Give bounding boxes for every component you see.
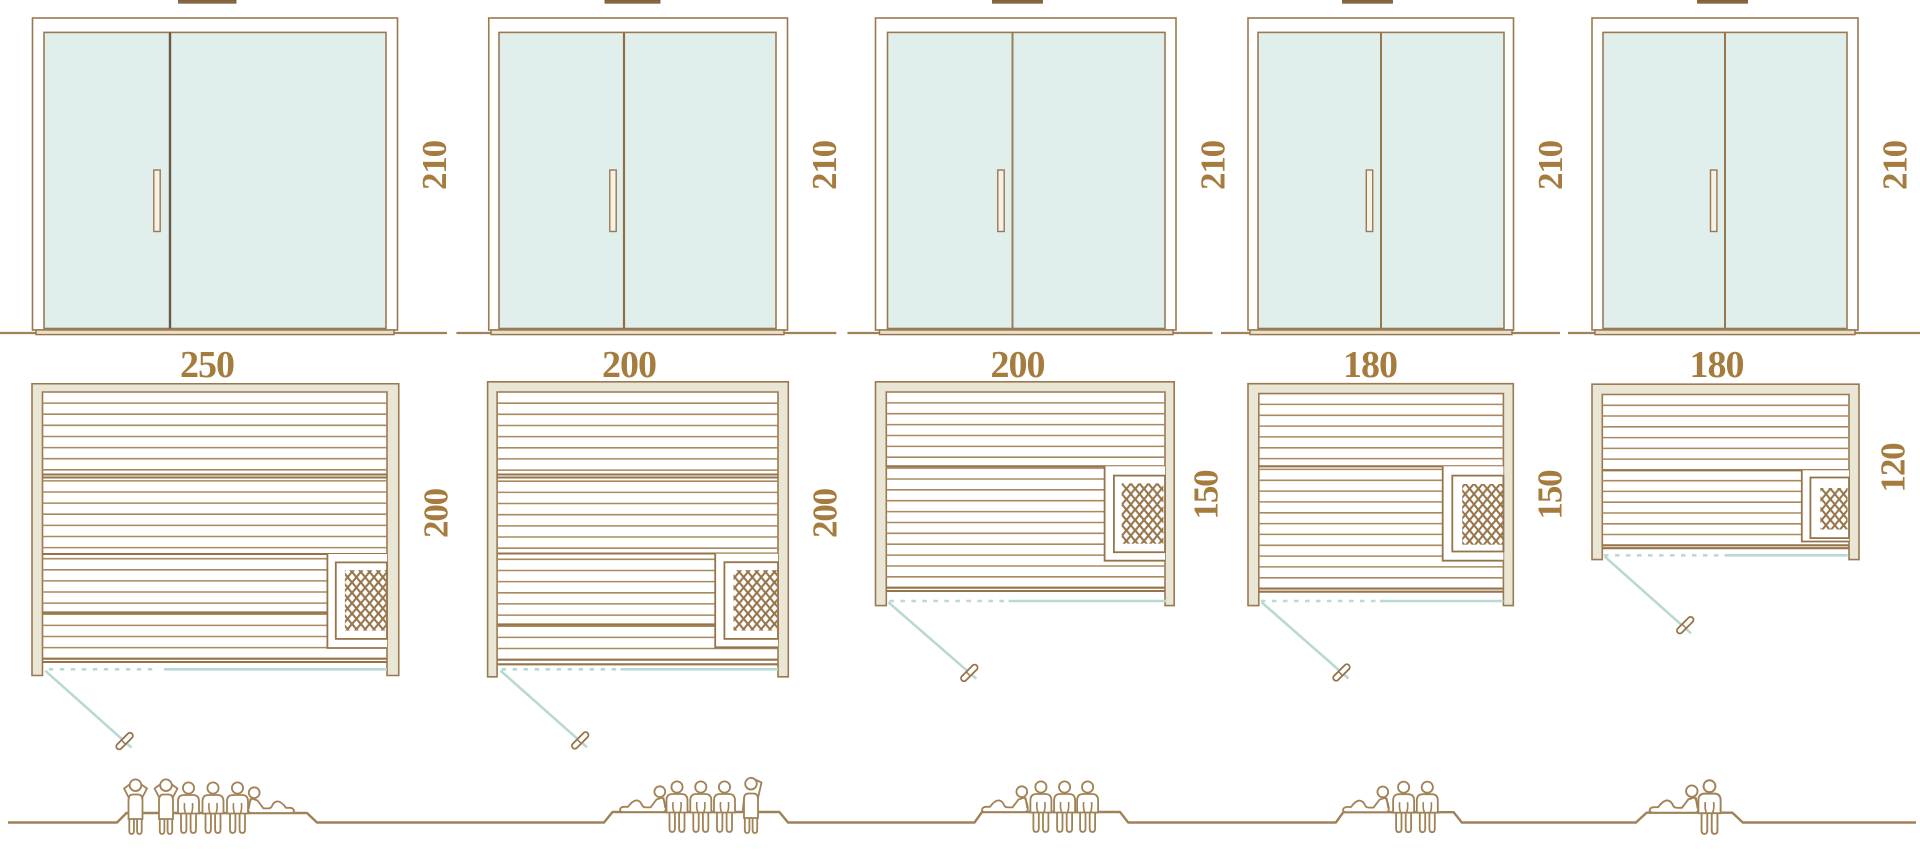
svg-text:200: 200 (991, 344, 1045, 386)
svg-text:120: 120 (1874, 443, 1913, 493)
svg-text:150: 150 (1187, 470, 1226, 520)
svg-text:180: 180 (1690, 344, 1744, 386)
svg-text:210: 210 (805, 140, 844, 190)
svg-text:180: 180 (1343, 344, 1397, 386)
svg-text:150: 150 (1531, 470, 1570, 520)
svg-text:200: 200 (417, 488, 456, 538)
svg-text:210: 210 (415, 140, 454, 190)
svg-text:210: 210 (1531, 140, 1570, 190)
svg-text:200: 200 (602, 344, 656, 386)
svg-text:210: 210 (1876, 140, 1915, 190)
svg-text:250: 250 (180, 344, 234, 386)
svg-text:210: 210 (1194, 140, 1233, 190)
svg-text:200: 200 (806, 488, 845, 538)
